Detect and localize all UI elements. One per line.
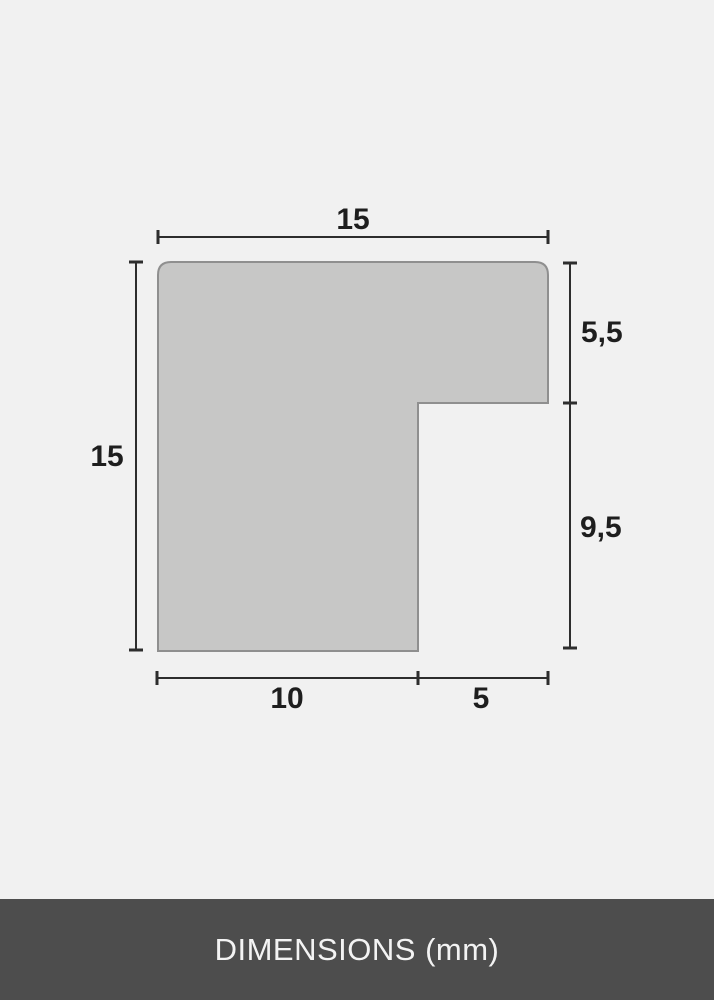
dimension-label-right-upper: 5,5 <box>581 316 623 349</box>
footer-bar: DIMENSIONS (mm) <box>0 899 714 1000</box>
dimension-left-height: 15 <box>90 262 143 650</box>
dimension-top-width: 15 <box>158 203 548 244</box>
profile-shape <box>158 262 548 651</box>
dimension-label-bottom-inner: 10 <box>270 682 303 715</box>
dimension-label-bottom-outer: 5 <box>473 682 490 715</box>
dimension-label-left-height: 15 <box>90 440 123 473</box>
dimension-label-right-lower: 9,5 <box>580 511 622 544</box>
dimension-bottom-widths: 10 5 <box>157 671 548 715</box>
dimension-label-top-width: 15 <box>336 203 369 236</box>
profile-drawing: 15 15 5,5 9,5 <box>0 0 714 899</box>
profile-drawing-svg: 15 15 5,5 9,5 <box>0 0 714 899</box>
footer-title: DIMENSIONS (mm) <box>215 932 500 968</box>
dimension-diagram-page: 15 15 5,5 9,5 <box>0 0 714 1000</box>
dimension-right-heights: 5,5 9,5 <box>563 263 623 648</box>
